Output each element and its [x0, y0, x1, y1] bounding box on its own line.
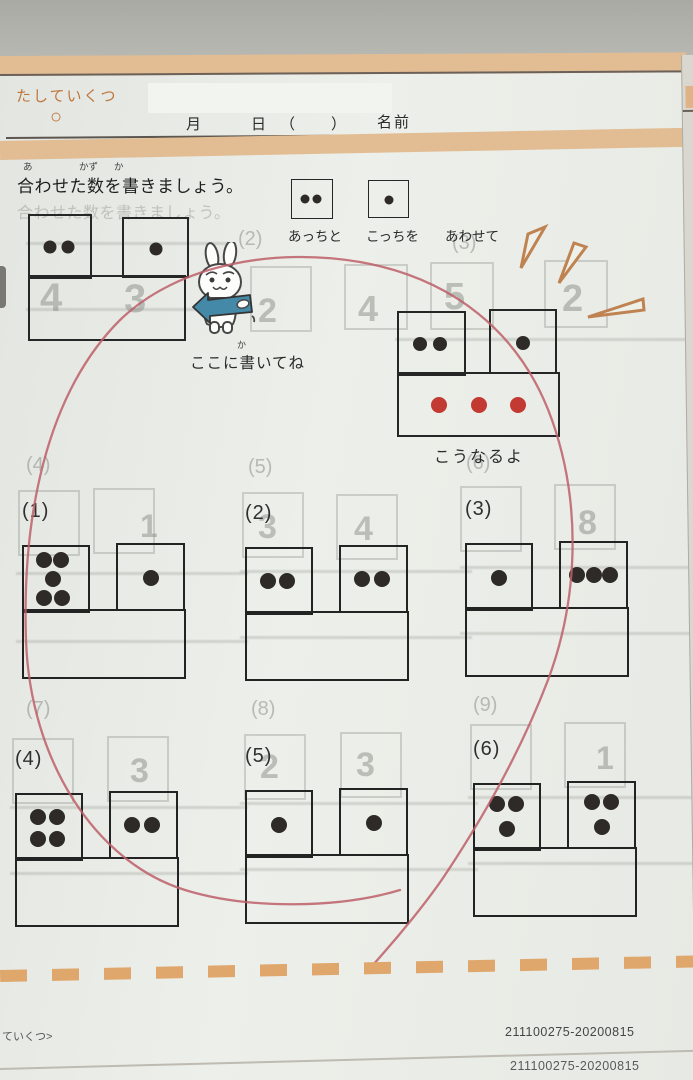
problem-right-box [109, 791, 178, 859]
ghost-label: (4) [26, 454, 50, 477]
header-top-bar [0, 52, 686, 76]
result-answer-box [397, 372, 560, 437]
counting-dot [510, 397, 526, 413]
problem-answer-box [245, 854, 409, 924]
furigana-kazu: かず [79, 159, 98, 173]
problem-left-box [465, 543, 533, 611]
counting-dot [279, 573, 295, 589]
counting-dot [260, 573, 276, 589]
problem-right-box [339, 545, 408, 613]
counting-dot [354, 571, 370, 587]
counting-dot [149, 242, 162, 255]
counting-dot [508, 796, 524, 812]
problem-answer-box [465, 607, 629, 677]
problem-left-box [245, 790, 313, 858]
problem-block-2: (2) [243, 494, 475, 690]
ghost-label: (8) [251, 698, 275, 721]
month-label: 月 [186, 113, 201, 134]
problem-left-box [245, 547, 313, 615]
legend-caption-1: あっちと [288, 225, 342, 245]
problem-block-6: (6) [471, 730, 693, 926]
instruction-text: 合わせた数を書きましょう。 [17, 172, 243, 197]
counting-dot [499, 821, 515, 837]
paren-close: ） [331, 113, 346, 134]
legend-box-right [368, 180, 409, 218]
footer-code: 211100275-20200815 [505, 1025, 635, 1039]
counting-dot [30, 831, 46, 847]
furigana-a: あ [23, 159, 33, 173]
title-circle-mark: ○ [50, 106, 62, 129]
problem-block-4: (4) [13, 740, 245, 936]
problem-answer-box [245, 611, 409, 681]
counting-dot [124, 817, 140, 833]
counting-dot [433, 337, 447, 351]
problem-right-box [116, 543, 185, 611]
problem-label: (1) [22, 500, 49, 523]
problem-label: (6) [473, 738, 500, 761]
counting-dot [489, 796, 505, 812]
example-right-box [122, 217, 189, 278]
footer-left-text: ていくつ> [2, 1028, 52, 1044]
problem-answer-box [22, 609, 186, 679]
footer-dashed-line [0, 955, 693, 982]
counting-dot [594, 819, 610, 835]
counting-dot [413, 337, 427, 351]
whiteout-patch [148, 83, 392, 113]
counting-dot [30, 809, 46, 825]
counting-dot [584, 794, 600, 810]
counting-dot [271, 817, 287, 833]
photo-left-smudge [0, 266, 6, 308]
problem-answer-box [473, 847, 637, 917]
counting-dot [49, 809, 65, 825]
counting-dot [54, 590, 70, 606]
counting-dot [45, 571, 61, 587]
counting-dot [313, 195, 322, 204]
problem-label: (5) [245, 745, 272, 768]
problem-block-1: (1) [20, 492, 252, 688]
counting-dot [516, 336, 530, 350]
rabbit-mascot [186, 242, 268, 342]
result-left-box [397, 311, 466, 376]
photo-background [0, 0, 693, 57]
legend-box-left [291, 179, 333, 219]
counting-dot [384, 195, 393, 204]
counting-dot [602, 567, 618, 583]
problem-label: (3) [465, 498, 492, 521]
rabbit-note-text: ここに書いてね [190, 351, 305, 373]
paren-open: （ [280, 113, 295, 134]
problem-left-box [15, 793, 83, 861]
problem-block-5: (5) [243, 737, 475, 933]
counting-dot [36, 590, 52, 606]
counting-dot [366, 815, 382, 831]
counting-dot [53, 552, 69, 568]
counting-dot [36, 552, 52, 568]
counting-dot [374, 571, 390, 587]
counting-dot [586, 567, 602, 583]
rabbit-note-furigana: か [237, 338, 246, 351]
ghost-label: (9) [473, 694, 497, 717]
problem-block-3: (3) [463, 490, 693, 686]
name-label: 名前 [377, 111, 411, 132]
problem-right-box [567, 781, 636, 849]
problem-left-box [22, 545, 90, 613]
ghost-label: (5) [248, 456, 272, 479]
counting-dot [471, 397, 487, 413]
counting-dot [301, 195, 310, 204]
problem-left-box [473, 783, 541, 851]
problem-right-box [339, 788, 408, 856]
problem-right-box [559, 541, 628, 609]
counting-dot [61, 240, 74, 253]
example-answer-box [28, 275, 186, 341]
ghost-number: 4 [358, 288, 378, 330]
legend-caption-2: こっちを [366, 225, 419, 245]
legend-caption-3: あわせて [445, 225, 499, 245]
burst-stroke-icon [521, 227, 545, 268]
day-label: 日 [251, 113, 266, 134]
counting-dot [569, 567, 585, 583]
worksheet-photo: たしていくつ ○ 月 日 （ ） 名前 あ かず か 合わせた数を書きましょう。… [0, 0, 693, 1080]
problem-answer-box [15, 857, 179, 927]
furigana-ka: か [114, 159, 124, 173]
counting-dot [431, 397, 447, 413]
under-sheet-dark-line [683, 110, 693, 112]
worksheet-title: たしていくつ [16, 85, 118, 106]
result-right-box [489, 309, 557, 374]
problem-label: (4) [15, 748, 42, 771]
ghost-number: 2 [562, 278, 583, 321]
counting-dot [43, 240, 56, 253]
counting-dot [49, 831, 65, 847]
problem-label: (2) [245, 502, 272, 525]
footer-code-under-sheet: 211100275-20200815 [510, 1059, 640, 1073]
under-sheet-orange-bit [685, 86, 693, 108]
counting-dot [144, 817, 160, 833]
ghost-label: (7) [26, 698, 50, 721]
counting-dot [491, 570, 507, 586]
example-left-box [28, 214, 92, 279]
result-caption: こうなるよ [434, 443, 524, 467]
counting-dot [603, 794, 619, 810]
counting-dot [143, 570, 159, 586]
